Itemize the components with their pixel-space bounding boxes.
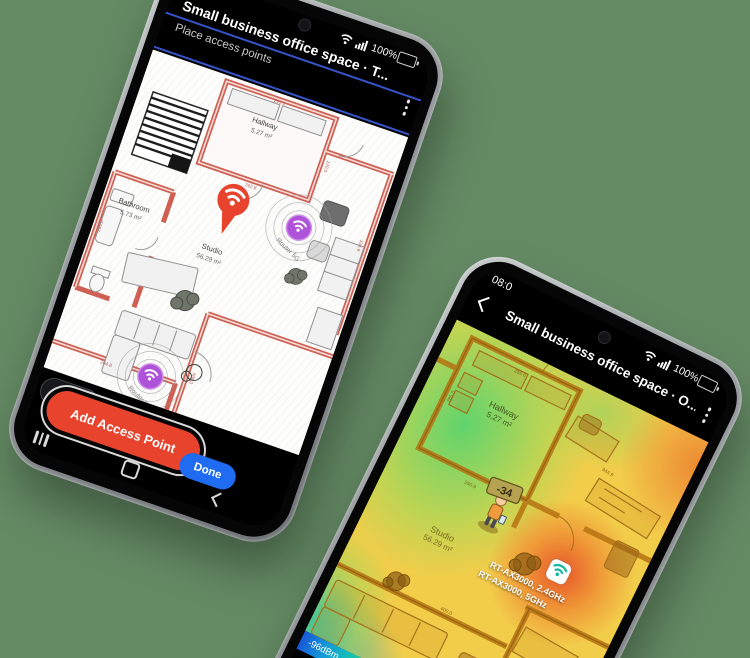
wifi-status-icon (642, 348, 659, 364)
signal-reading-badge: -34 (486, 477, 524, 505)
clock: 08:0 (490, 274, 515, 294)
recents-nav-icon[interactable] (32, 430, 49, 447)
overflow-menu-icon[interactable] (402, 99, 411, 116)
wifi-status-icon (339, 32, 355, 47)
floorplan-view[interactable]: 265.0 262.8 120.0 285.0 204.8 334.9 408.… (44, 49, 409, 455)
scene-background: 100% Small business office space · T... … (0, 0, 750, 658)
access-point-marker[interactable] (544, 557, 573, 586)
back-nav-icon[interactable] (211, 492, 226, 507)
signal-heatmap-view[interactable]: 265.0 285.0 250.9 400.0 344.9 (305, 320, 708, 658)
battery-percent: 100% (671, 362, 700, 385)
home-nav-icon[interactable] (119, 459, 141, 481)
svg-text:250.9: 250.9 (463, 480, 477, 491)
svg-text:344.9: 344.9 (600, 467, 614, 479)
battery-percent: 100% (370, 42, 399, 62)
cellular-signal-icon (355, 37, 370, 51)
cellular-signal-icon (657, 356, 673, 371)
back-arrow-icon[interactable] (478, 297, 493, 312)
overflow-menu-icon[interactable] (701, 407, 711, 423)
left-phone-screen: 100% Small business office space · T... … (17, 0, 435, 533)
